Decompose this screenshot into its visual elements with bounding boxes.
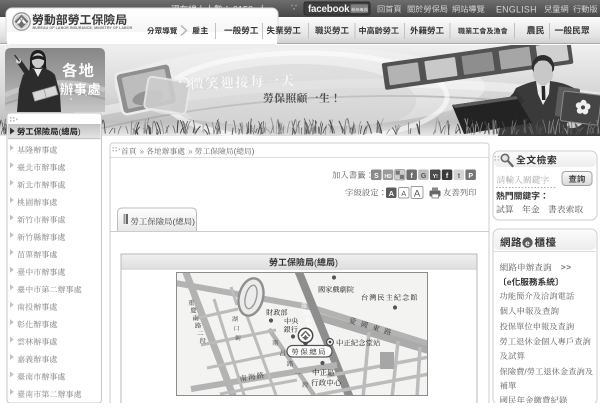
svg-text:): ) bbox=[335, 258, 338, 268]
svg-text:Y!: Y! bbox=[433, 174, 438, 180]
svg-text:»: » bbox=[140, 147, 145, 156]
svg-text:A: A bbox=[401, 189, 406, 198]
svg-text:G: G bbox=[421, 173, 427, 180]
svg-text:ENGLISH: ENGLISH bbox=[496, 5, 537, 15]
svg-text:P: P bbox=[468, 173, 473, 180]
svg-text:(: ( bbox=[234, 147, 237, 156]
svg-text:S: S bbox=[374, 173, 379, 180]
svg-text:(: ( bbox=[173, 217, 176, 227]
svg-text:): ) bbox=[252, 147, 255, 156]
svg-text:facebook: facebook bbox=[308, 4, 350, 15]
svg-text:): ) bbox=[78, 127, 81, 137]
svg-text:»: » bbox=[188, 147, 193, 156]
svg-text:(: ( bbox=[314, 258, 317, 268]
svg-text:): ) bbox=[192, 217, 195, 227]
svg-text:BUREAU OF LABOR INSURANCE, MIN: BUREAU OF LABOR INSURANCE, MINISTRY OF L… bbox=[33, 26, 133, 30]
svg-text:HD: HD bbox=[384, 174, 392, 180]
svg-text:(: ( bbox=[59, 127, 62, 137]
svg-text:A: A bbox=[389, 189, 395, 198]
svg-text:>>: >> bbox=[561, 262, 572, 272]
svg-text:e: e bbox=[507, 277, 512, 287]
svg-text:A: A bbox=[414, 188, 421, 199]
svg-text:e: e bbox=[525, 238, 530, 248]
